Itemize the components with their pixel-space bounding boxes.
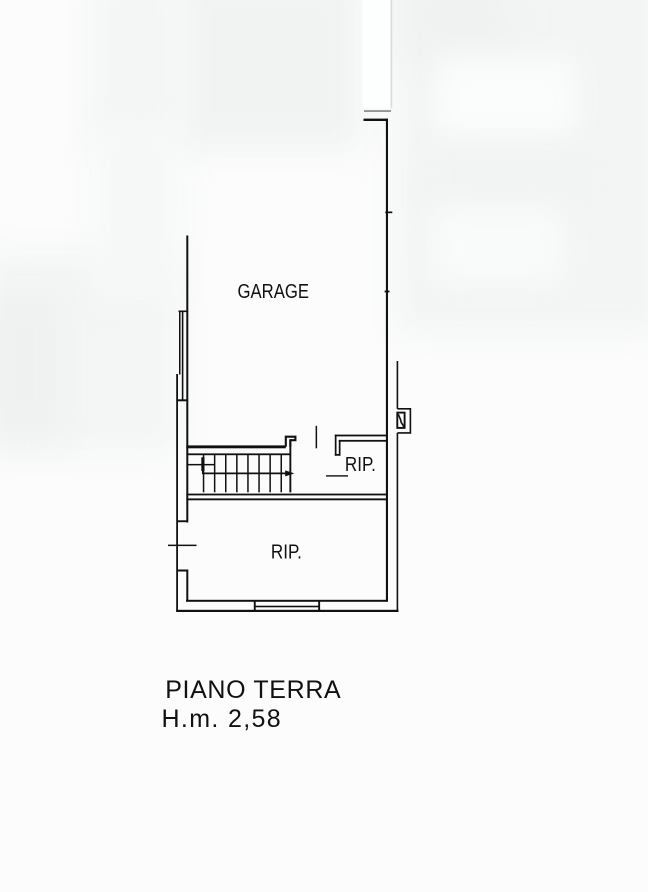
- svg-text:GARAGE: GARAGE: [238, 281, 310, 303]
- svg-text:RIP.: RIP.: [345, 454, 376, 476]
- svg-text:PIANO TERRA: PIANO TERRA: [165, 676, 341, 704]
- svg-text:H.m. 2,58: H.m. 2,58: [162, 705, 283, 733]
- svg-text:RIP.: RIP.: [271, 541, 302, 563]
